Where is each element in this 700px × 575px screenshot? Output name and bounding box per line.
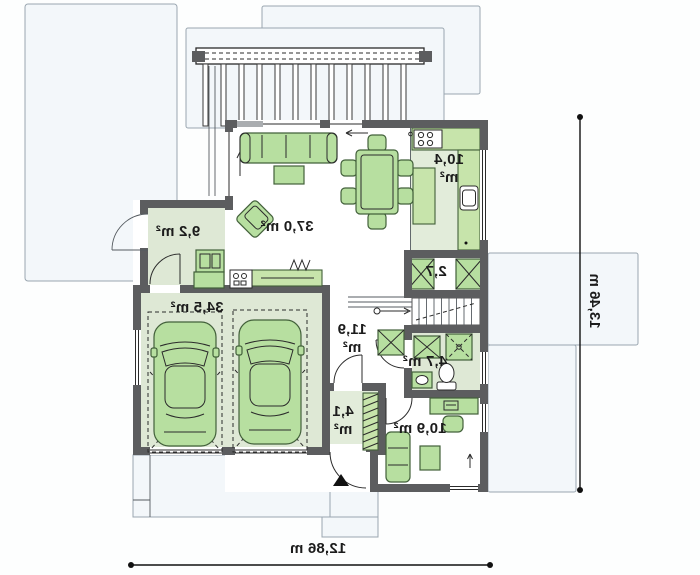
floor-plan-canvas: 37,0 m² 10,4 m² 2,7 9,2 m² 34,5 m² 11,9 …: [0, 0, 700, 575]
terrace-step-window: [237, 120, 263, 128]
garage-door-left: [150, 447, 222, 455]
sliding-door: [263, 120, 320, 128]
car-icon: [151, 322, 219, 446]
office-side-window: [480, 404, 488, 432]
garage-door-right: [235, 447, 307, 455]
room-area: 10,4: [409, 151, 489, 169]
dimension-width-label: 12,86 m: [248, 540, 388, 558]
room-label-hall: 11,9 m²: [312, 321, 392, 357]
sofa-icon: [240, 133, 337, 163]
room-unit: m²: [409, 169, 489, 187]
room-label-living: 37,0 m²: [237, 218, 337, 236]
stove-icon: [409, 130, 442, 148]
cooktop-icon: [230, 270, 252, 288]
room-label-garage: 34,5 m²: [147, 299, 247, 317]
utility-furniture: [194, 250, 224, 288]
sink-icon: [460, 186, 478, 210]
room-area: 11,9: [312, 321, 392, 339]
office-bottom-window: [450, 484, 478, 492]
dimension-height-label: 13,46 m: [584, 231, 604, 371]
office-sofa-icon: [386, 432, 410, 482]
side-table-icon: [420, 446, 440, 470]
dining-table-icon: [356, 150, 398, 214]
washbasin-icon: [412, 372, 432, 388]
room-area: 4,1: [303, 403, 383, 421]
bathroom-window: [480, 352, 488, 384]
room-label-office: 10,9 m²: [370, 420, 470, 438]
room-label-utility: 9,2 m²: [128, 223, 228, 241]
room-label-bathroom: 4,7 m²: [385, 353, 465, 371]
room-label-kitchen: 10,4 m²: [409, 151, 489, 187]
top-window: [330, 120, 362, 128]
car-icon: [236, 320, 304, 444]
room-label-pantry: 2,7: [406, 263, 466, 281]
desk-icon: [430, 398, 478, 414]
coffee-table-icon: [274, 166, 304, 184]
garage-window: [133, 330, 141, 385]
room-unit: m²: [312, 339, 392, 357]
